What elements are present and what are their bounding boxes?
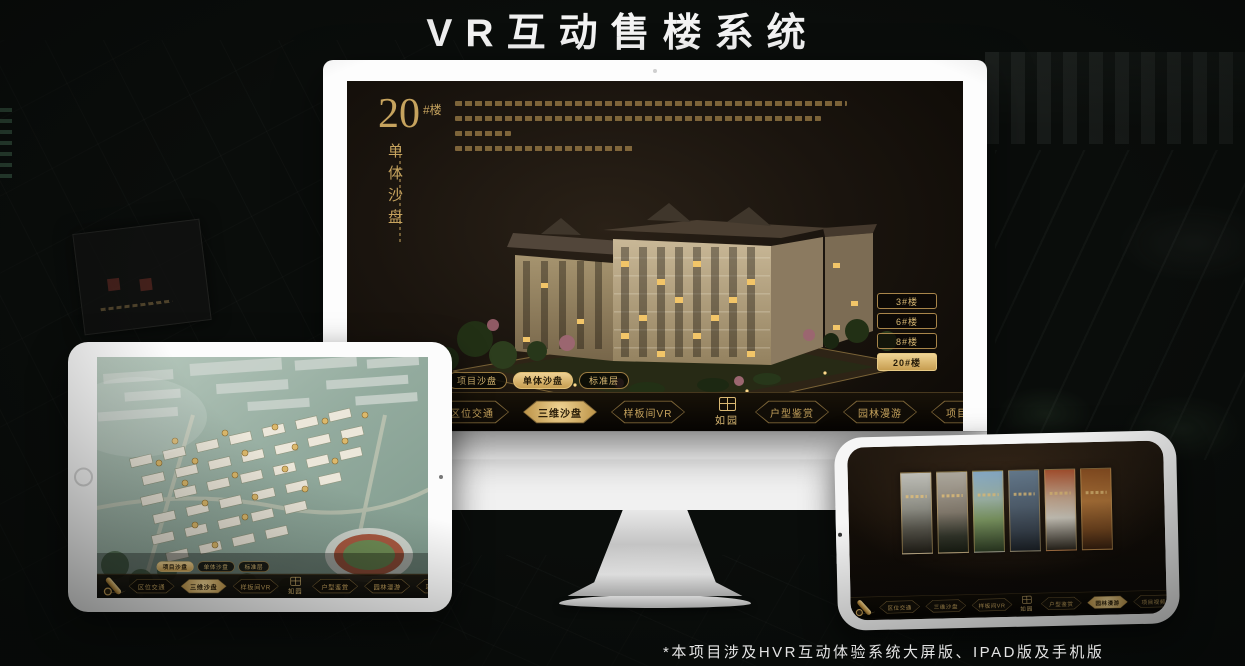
nav-item-floorplans[interactable]: 户型鉴赏 — [1041, 596, 1082, 611]
brand-logo: 如园 — [288, 577, 303, 596]
background-edge-marks — [0, 108, 12, 178]
nav-item-3d-sandbox[interactable]: 三维沙盘 — [925, 599, 966, 614]
gold-scroll-icon[interactable] — [854, 598, 875, 618]
tab-single-sandbox[interactable]: 单体沙盘 — [513, 372, 573, 389]
building-button-6[interactable]: 6#楼 — [877, 313, 937, 329]
tablet-screen: 项目沙盘 单体沙盘 标准层 区位交通 三维沙盘 — [97, 357, 428, 598]
seal-icon — [719, 397, 736, 411]
footnote-text: *本项目涉及HVR互动体验系统大屏版、IPAD版及手机版 — [663, 641, 1223, 662]
nav-item-project-video[interactable]: 项目视频 — [931, 400, 963, 425]
phone-screen: 区位交通 三维沙盘 样板间VR 如园 户型鉴赏 — [847, 440, 1167, 620]
building-button-3[interactable]: 3#楼 — [877, 293, 937, 309]
plaque-seal-mark — [107, 278, 120, 291]
monitor-stand-foot — [559, 595, 751, 608]
tablet-bottom-bar: 项目沙盘 单体沙盘 标准层 区位交通 三维沙盘 — [97, 561, 428, 598]
nav-item-3d-sandbox[interactable]: 三维沙盘 — [523, 400, 597, 425]
building-number: 20 — [378, 93, 420, 135]
nav-item-project-video[interactable]: 项目视频 — [1133, 594, 1167, 609]
nav-item-showroom-vr[interactable]: 样板间VR — [233, 578, 279, 594]
seal-icon — [290, 577, 301, 586]
brand-logo: 如园 — [715, 397, 739, 427]
plaque-text-line — [101, 300, 173, 312]
home-button[interactable] — [74, 468, 93, 487]
front-camera-dot — [838, 532, 842, 536]
gallery-panel-3[interactable] — [972, 470, 1005, 553]
phone-notch — [835, 505, 845, 563]
nav-item-location[interactable]: 区位交通 — [879, 600, 920, 615]
background-city-blocks — [985, 52, 1245, 144]
nav-item-garden-tour[interactable]: 园林漫游 — [364, 578, 410, 594]
nav-item-floorplans[interactable]: 户型鉴赏 — [755, 400, 829, 425]
gallery-panels — [900, 468, 1113, 555]
monitor-stand-neck — [560, 510, 750, 596]
phone-nav-bar: 区位交通 三维沙盘 样板间VR 如园 户型鉴赏 — [850, 590, 1166, 619]
building-button-8[interactable]: 8#楼 — [877, 333, 937, 349]
front-camera-dot — [439, 475, 443, 479]
nav-item-garden-tour[interactable]: 园林漫游 — [1087, 595, 1128, 610]
background-plaque — [72, 219, 211, 336]
nav-item-3d-sandbox[interactable]: 三维沙盘 — [181, 578, 227, 594]
nav-item-showroom-vr[interactable]: 样板间VR — [972, 598, 1013, 613]
nav-item-garden-tour[interactable]: 园林漫游 — [843, 400, 917, 425]
page-title: VR互动售楼系统 — [0, 2, 1245, 58]
gallery-panel-5[interactable] — [1044, 468, 1077, 551]
tablet-nav-bar: 区位交通 三维沙盘 样板间VR 如园 户型鉴赏 — [97, 574, 428, 598]
plaque-seal-mark — [139, 278, 152, 291]
nav-item-project-video[interactable]: 项目视频 — [416, 578, 428, 594]
tab-project-sandbox[interactable]: 项目沙盘 — [157, 561, 194, 572]
gallery-panel-1[interactable] — [900, 472, 933, 555]
phone-bottom-bar: 区位交通 三维沙盘 样板间VR 如园 户型鉴赏 — [850, 590, 1166, 619]
building-button-20[interactable]: 20#楼 — [877, 353, 937, 371]
brand-logo: 如园 — [1020, 596, 1034, 613]
tab-project-sandbox[interactable]: 项目沙盘 — [447, 372, 507, 389]
webcam-dot — [653, 69, 657, 73]
tab-standard-floor[interactable]: 标准层 — [579, 372, 629, 389]
building-selector: 3#楼 6#楼 8#楼 20#楼 — [877, 293, 937, 371]
gold-scroll-icon[interactable] — [102, 575, 126, 597]
nav-item-showroom-vr[interactable]: 样板间VR — [611, 400, 685, 425]
nav-item-floorplans[interactable]: 户型鉴赏 — [312, 578, 358, 594]
tab-single-sandbox[interactable]: 单体沙盘 — [197, 561, 234, 572]
gallery-panel-4[interactable] — [1008, 469, 1041, 552]
tablet-sandbox-tabs: 项目沙盘 单体沙盘 标准层 — [97, 561, 428, 573]
phone-device: 区位交通 三维沙盘 样板间VR 如园 户型鉴赏 — [834, 430, 1180, 631]
seal-icon — [1022, 596, 1032, 604]
building-number-suffix: #楼 — [423, 101, 442, 118]
nav-item-location[interactable]: 区位交通 — [129, 578, 175, 594]
tablet-device: 项目沙盘 单体沙盘 标准层 区位交通 三维沙盘 — [68, 342, 452, 612]
tab-standard-floor[interactable]: 标准层 — [238, 561, 269, 572]
gallery-panel-6[interactable] — [1080, 468, 1113, 551]
background-photo-texture — [995, 150, 1245, 460]
gallery-panel-2[interactable] — [936, 471, 969, 554]
